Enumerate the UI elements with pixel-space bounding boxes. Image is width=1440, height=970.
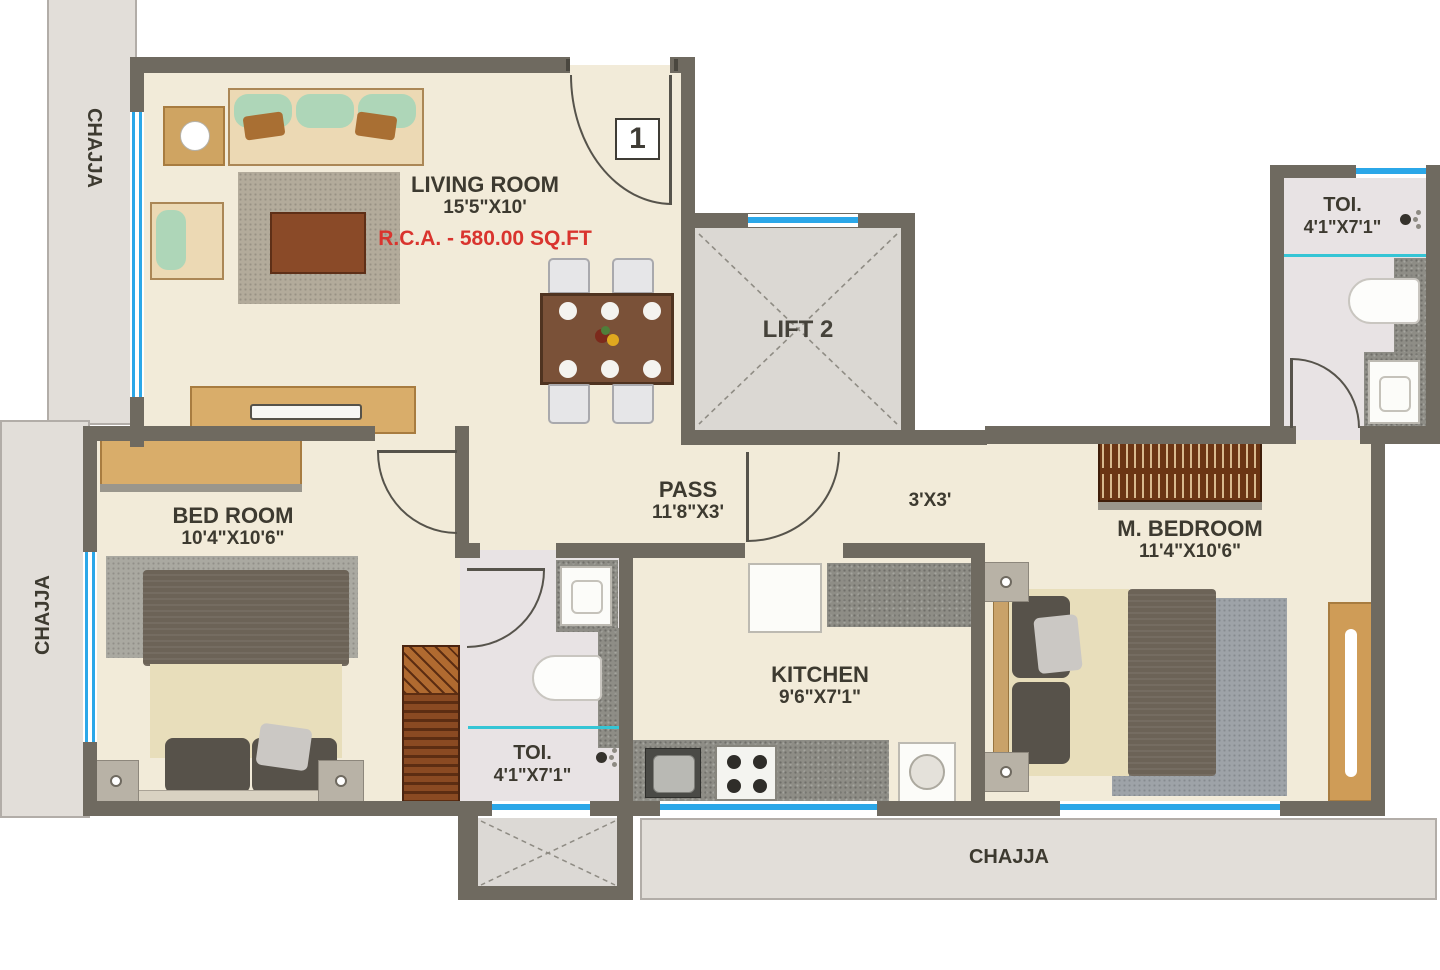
- toilet-top-partition-line: [1284, 254, 1426, 257]
- side-table: [163, 106, 225, 166]
- room-dims: 4'1"X7'1": [470, 765, 595, 786]
- door-jamb: [566, 59, 570, 71]
- room-dims: 9'6"X7'1": [720, 687, 920, 709]
- kitchen-stove: [715, 745, 777, 801]
- toilet-top-label: TOI. 4'1"X7'1": [1280, 194, 1405, 238]
- toilet-mid-partition-line: [468, 726, 619, 729]
- table-lamp: [180, 121, 210, 151]
- toilet-top-door-panel: [1290, 358, 1293, 428]
- wardrobe-slats: [1102, 444, 1258, 468]
- wall: [681, 57, 695, 228]
- toilet-top-sink: [1368, 360, 1420, 424]
- wall: [458, 886, 633, 900]
- plates: [559, 302, 577, 320]
- wall: [619, 543, 745, 558]
- wall: [681, 213, 695, 445]
- room-name: TOI.: [470, 742, 595, 765]
- washing-machine: [898, 742, 956, 804]
- room-name: BED ROOM: [113, 503, 353, 528]
- sofa-pillow: [243, 111, 286, 140]
- bedroom-nightstand: [93, 760, 139, 802]
- room-dims: 11'8"X3': [598, 502, 778, 524]
- entrance-door-number: 1: [629, 122, 646, 156]
- wall: [455, 426, 469, 558]
- lift-door: [748, 214, 858, 227]
- nightstand-knob: [1000, 576, 1012, 588]
- armchair: [150, 202, 224, 280]
- wall: [915, 430, 987, 445]
- toilet-mid-door-panel: [467, 568, 545, 571]
- tv: [250, 404, 362, 420]
- nightstand-knob: [335, 775, 347, 787]
- wall: [83, 801, 463, 816]
- master-wardrobe: [1098, 438, 1262, 502]
- master-dresser: [1328, 602, 1376, 802]
- room-name: PASS: [598, 477, 778, 502]
- dining-table: [540, 293, 674, 385]
- nightstand-knob: [1000, 766, 1012, 778]
- sink-basin: [653, 755, 695, 793]
- nightstand-knob: [110, 775, 122, 787]
- bedroom-pillow: [165, 738, 250, 793]
- sofa-pillow: [355, 111, 398, 140]
- kitchen-sink: [645, 748, 701, 798]
- bedroom-door-panel: [377, 450, 457, 453]
- bedroom-pillow-small: [255, 723, 312, 772]
- bedroom-nightstand: [318, 760, 364, 802]
- dining-chair: [612, 258, 654, 294]
- sofa: [228, 88, 424, 166]
- wall: [455, 543, 480, 558]
- entrance-door-number-badge: 1: [615, 118, 660, 160]
- room-dims: 4'1"X7'1": [1280, 217, 1405, 238]
- room-name: KITCHEN: [720, 662, 920, 687]
- dining-chair: [548, 384, 590, 424]
- toilet-mid-window: [492, 801, 590, 816]
- room-name: LIVING ROOM: [355, 172, 615, 197]
- master-nightstand: [983, 752, 1029, 792]
- bedroom-label: BED ROOM 10'4"X10'6": [113, 503, 353, 550]
- wardrobe-slats: [1102, 474, 1258, 498]
- wall: [985, 426, 1282, 444]
- dining-chair: [612, 384, 654, 424]
- room-dims: 11'4"X10'6": [1060, 541, 1320, 563]
- wall: [1371, 426, 1385, 816]
- kitchen-platform: [748, 563, 822, 633]
- washer-drum: [909, 754, 945, 790]
- room-dims: 10'4"X10'6": [113, 528, 353, 550]
- lobby-dims-label: 3'X3': [880, 490, 980, 512]
- wall: [1270, 165, 1356, 178]
- wall: [843, 543, 985, 558]
- master-bed-blanket: [1128, 589, 1216, 776]
- wall: [130, 57, 570, 73]
- room-dims: 15'5"X10': [355, 197, 615, 219]
- duct-cross-icon: [478, 818, 618, 888]
- room-name: TOI.: [1280, 194, 1405, 217]
- master-headboard: [993, 585, 1009, 780]
- toilet-mid-sink: [560, 566, 612, 626]
- wall: [681, 430, 915, 445]
- kitchen-window: [660, 801, 877, 816]
- floor-plan: 1 LIVING ROOM 15'5"X10' R.C.A. - 580.00 …: [0, 0, 1440, 970]
- chajja-bottom-label: CHAJJA: [909, 846, 1109, 869]
- master-nightstand: [983, 562, 1029, 602]
- lift-label: LIFT 2: [738, 316, 858, 344]
- shower-icon: [596, 752, 607, 763]
- chajja-left-label: CHAJJA: [32, 515, 58, 715]
- wardrobe-slats: [404, 693, 458, 803]
- toilet-mid-wc: [532, 655, 602, 701]
- sink-basin: [571, 580, 603, 614]
- kitchen-label: KITCHEN 9'6"X7'1": [720, 662, 920, 709]
- room-name: M. BEDROOM: [1060, 516, 1320, 541]
- armchair-cushion: [156, 210, 186, 270]
- wall: [83, 426, 375, 441]
- rca-area-label: R.C.A. - 580.00 SQ.FT: [330, 227, 640, 251]
- toilet-mid-label: TOI. 4'1"X7'1": [470, 742, 595, 786]
- kitchen-counter-top: [827, 563, 971, 627]
- wall: [971, 543, 985, 816]
- wall: [901, 213, 915, 445]
- master-wardrobe-base: [1098, 502, 1262, 510]
- chajja-top-left-label: CHAJJA: [79, 48, 105, 248]
- master-bedroom-label: M. BEDROOM 11'4"X10'6": [1060, 516, 1320, 563]
- master-bedroom-window: [1060, 801, 1280, 816]
- toilet-top-window: [1356, 165, 1426, 178]
- bedroom-bed-blanket: [143, 570, 349, 666]
- sink-basin: [1379, 376, 1411, 412]
- entrance-door-panel: [669, 75, 672, 205]
- wall: [1426, 165, 1440, 444]
- dresser-base: [100, 484, 302, 492]
- door-jamb: [674, 59, 678, 71]
- dresser-handle: [1345, 629, 1357, 777]
- living-room-label: LIVING ROOM 15'5"X10': [355, 172, 615, 219]
- centerpiece: [601, 326, 610, 335]
- sofa-cushion: [296, 94, 354, 128]
- dining-chair: [548, 258, 590, 294]
- master-pillow-small: [1033, 614, 1083, 674]
- wardrobe-shelf: [404, 647, 458, 693]
- bedroom-window: [83, 552, 97, 742]
- wall: [619, 543, 633, 816]
- pass-label: PASS 11'8"X3': [598, 477, 778, 524]
- stove-burners: [727, 755, 741, 769]
- toilet-top-wc: [1348, 278, 1420, 324]
- living-window: [130, 112, 144, 397]
- bedroom-wardrobe: [402, 645, 460, 805]
- centerpiece: [607, 334, 619, 346]
